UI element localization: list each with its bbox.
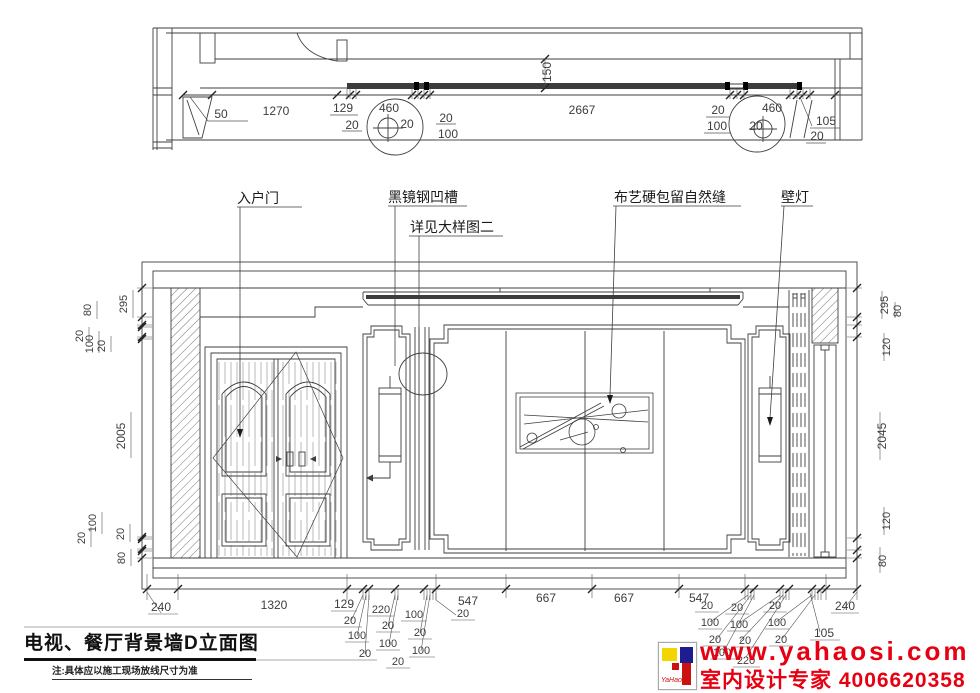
dim-bl-4: 20 [382,620,394,632]
title-block: 电视、餐厅背景墙D立面图 注:具体应以施工现场放线尺寸为准 [24,628,259,680]
plan-dim-20b: 20 [439,111,453,125]
left-hatch-column [171,288,200,558]
note-underline [52,679,252,680]
drawing-sheet: 50 1270 129 20 460 20 20 100 2667 20 100… [0,0,980,693]
right-wall-panel [748,326,790,550]
dim-bl-3: 220 [372,604,390,616]
left-wall-panel [363,326,410,550]
dim-br-9: 100 [768,617,786,629]
dim-bl-10: 20 [457,608,469,620]
plan-corner-box [850,33,862,59]
plan-dim-460-right: 460 [762,101,782,115]
logo-script-text: YaHaosi [661,677,687,684]
leader-fabric [610,206,741,396]
dim-br-8: 20 [769,600,781,612]
dim-left-80: 80 [82,304,94,316]
brand-tagline: 室内设计专家 [700,669,832,692]
panel-seam-lines [415,327,429,550]
leader-wall-lamp [770,206,813,418]
groove-strip [363,288,743,305]
door-arch-panel-left [222,382,266,476]
plan-dim-2667: 2667 [569,103,596,117]
dim-bottom-667a: 667 [536,591,556,605]
fabric-seam-lines [506,331,664,551]
dim-right-80b: 80 [877,555,889,567]
door-lower-panel-right [286,494,330,546]
dimension-annotations: 295 80 20 100 20 2005 100 20 20 80 295 8… [24,284,904,668]
plan-dim-20-circled-left: 20 [400,117,414,131]
dim-left-295: 295 [118,295,130,313]
brand-phone: 4006620358 [839,669,966,692]
plan-door-swing-arc [297,33,337,61]
yahaosi-logo-icon: YaHaosi [658,642,697,690]
artwork [516,393,653,453]
logo-yellow-block [662,648,677,661]
drawing-note: 注:具体应以施工现场放线尺寸为准 [52,663,259,677]
label-black-mirror-groove: 黑镜钢凹槽 [388,189,458,205]
plan-dim-150: 150 [540,62,554,82]
plan-trapezoid-left [183,97,212,138]
wall-lamp-left [366,376,401,482]
door-lower-panel-left [222,494,266,546]
dim-bl-0: 20 [344,615,356,627]
door-handles [276,452,316,466]
plan-door-jamb-left [200,33,215,63]
dim-left-20c: 20 [76,532,88,544]
dim-left-20d: 20 [115,528,127,540]
leader-entry-door [237,207,302,430]
center-fabric-panel [430,325,745,553]
callouts: 入户门 黑镜钢凹槽 详见大样图二 布艺硬包留自然缝 壁灯 [237,189,813,438]
dim-bl-9: 100 [412,645,430,657]
logo-blue-block [680,647,693,663]
dim-bl-5: 100 [379,638,397,650]
dim-left-100b: 100 [87,514,99,532]
dim-br-0: 20 [701,600,713,612]
dim-bottom-547a: 547 [458,594,478,608]
plan-dim-460-left: 460 [379,101,399,115]
dim-right-120a: 120 [881,338,893,356]
label-see-detail: 详见大样图二 [410,219,494,235]
dim-br-5: 20 [731,602,743,614]
dim-bl-6: 20 [392,656,404,668]
brand-website-link[interactable]: www.yahaosi.com [700,636,969,667]
dim-left-100a: 100 [84,335,96,353]
entry-door [205,347,347,558]
plan-dim-100b: 100 [438,127,458,141]
cad-canvas: 50 1270 129 20 460 20 20 100 2667 20 100… [0,0,980,693]
branding-footer: YaHaosi www.yahaosi.com 室内设计专家 400662035… [655,634,980,693]
plan-dim-20d: 20 [810,129,824,143]
dim-left-80b: 80 [116,552,128,564]
brand-tagline-phone: 室内设计专家 4006620358 [700,664,966,693]
logo-red-square [672,663,679,670]
dim-bottom-129: 129 [334,597,354,611]
dim-bl-7: 100 [405,609,423,621]
plan-dim-20-circled-right: 20 [749,119,763,133]
dim-left-2005: 2005 [114,422,128,449]
dim-ticks [138,284,861,593]
plan-dim-ticks [179,55,839,99]
plan-dim-20c: 20 [711,103,725,117]
dim-right-120b: 120 [881,512,893,530]
plan-dim-105: 105 [816,114,836,128]
dim-bottom-240R: 240 [835,599,855,613]
plan-view: 50 1270 129 20 460 20 20 100 2667 20 100… [153,28,862,155]
dim-br-1: 100 [701,617,719,629]
dim-br-6: 100 [730,619,748,631]
plan-dim-20a: 20 [345,118,359,132]
wall-top-and-floor-lines [153,288,846,568]
dim-bottom-667b: 667 [614,591,634,605]
dim-bl-8: 20 [414,627,426,639]
dim-bottom-1320: 1320 [261,598,288,612]
label-entry-door: 入户门 [237,190,279,206]
plan-trapezoid-right [790,100,812,138]
dim-right-2045: 2045 [875,422,889,449]
dim-right-295: 295 [879,296,891,314]
elevation-view [142,262,857,589]
right-hatch-block [812,288,838,343]
plan-left-column [153,28,172,150]
dim-bl-2: 20 [359,648,371,660]
plan-door-jamb-right [337,40,347,61]
plan-dim-100c: 100 [707,119,727,133]
title-underline [24,658,256,661]
leader-arrowheads [237,395,773,438]
drawing-title: 电视、餐厅背景墙D立面图 [24,628,259,655]
label-wall-lamp: 壁灯 [781,189,809,205]
plan-dim-1270: 1270 [263,104,290,118]
plan-dim-50: 50 [214,107,228,121]
label-fabric-panel: 布艺硬包留自然缝 [614,189,726,205]
dim-bottom-240L: 240 [151,600,171,614]
dim-bl-1: 100 [348,630,366,642]
dim-right-80: 80 [892,305,904,317]
ceiling-step-line [200,307,789,317]
dim-left-20b: 20 [96,340,108,352]
plan-dim-129: 129 [333,101,353,115]
